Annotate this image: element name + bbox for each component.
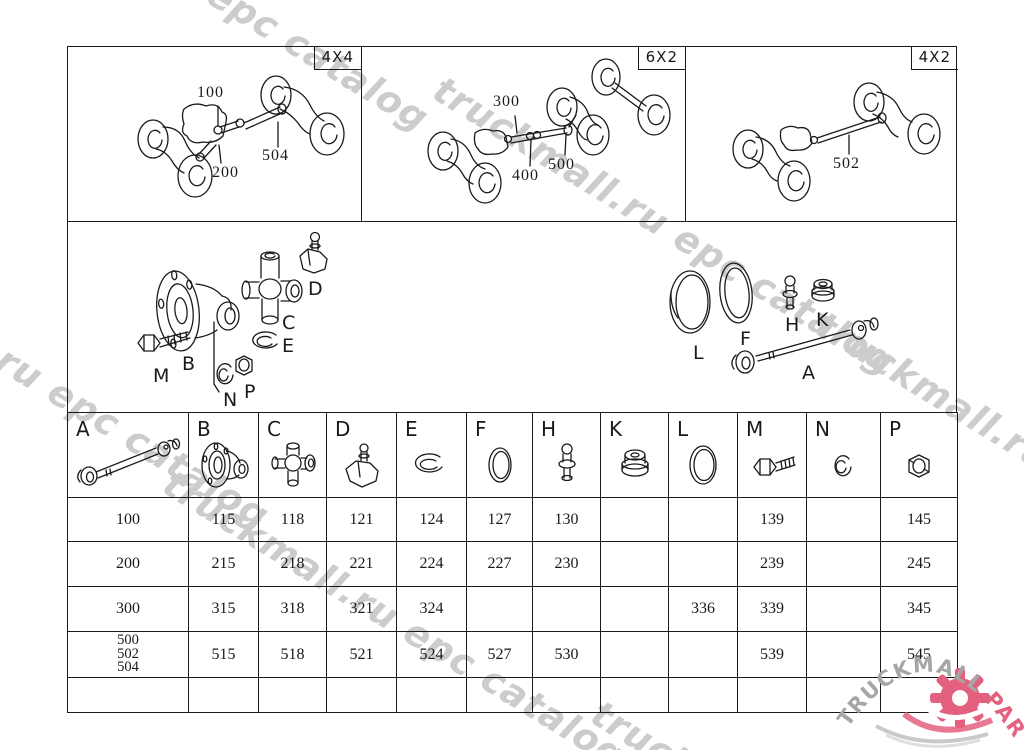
part-label-d: D bbox=[308, 278, 323, 300]
driveshaft bbox=[811, 113, 887, 144]
part-number-cell bbox=[738, 678, 807, 713]
part-number-cell bbox=[259, 678, 327, 713]
yoke-arm-drawing bbox=[195, 284, 239, 338]
callout-500: 500 bbox=[548, 156, 575, 174]
bolt-drawing bbox=[138, 332, 190, 351]
ring-l-drawing bbox=[670, 271, 710, 333]
part-number-cell: 518 bbox=[259, 632, 327, 678]
part-number-cell bbox=[467, 678, 533, 713]
part-number-cell: 215 bbox=[189, 542, 259, 587]
part-number-cell: 245 bbox=[881, 542, 958, 587]
part-number-cell: 318 bbox=[259, 587, 327, 632]
column-header-m: M bbox=[738, 413, 807, 498]
part-label-k: K bbox=[816, 309, 828, 331]
bolt-icon bbox=[744, 439, 800, 491]
part-number-cell bbox=[807, 498, 881, 542]
column-letter: M bbox=[746, 417, 763, 441]
part-number-cell bbox=[669, 542, 738, 587]
front-axle bbox=[428, 132, 501, 203]
part-number-cell bbox=[601, 542, 669, 587]
part-label-a: A bbox=[802, 362, 815, 384]
part-number-cell: 239 bbox=[738, 542, 807, 587]
part-number-cell: 130 bbox=[533, 498, 601, 542]
part-number-cell bbox=[327, 678, 397, 713]
column-letter: D bbox=[335, 417, 350, 441]
part-number-cell bbox=[601, 678, 669, 713]
callout-502: 502 bbox=[833, 155, 860, 173]
part-number-cell: 530 bbox=[533, 632, 601, 678]
lock-washer-icon bbox=[816, 439, 872, 491]
truckmall-logo: TRUCKMALL PARTS bbox=[818, 610, 1024, 750]
part-number-cell: 321 bbox=[327, 587, 397, 632]
part-number-cell: 145 bbox=[881, 498, 958, 542]
leader-line bbox=[214, 322, 219, 392]
drivetrain-panels: 100 200 504 4X4 bbox=[67, 46, 957, 222]
part-number-cell: 339 bbox=[738, 587, 807, 632]
column-letter: K bbox=[609, 417, 622, 441]
panel-4x2: 502 4X2 bbox=[686, 47, 958, 221]
column-letter: B bbox=[197, 417, 211, 441]
part-label-e: E bbox=[282, 335, 294, 357]
grease-nipple-icon bbox=[539, 439, 595, 491]
part-number-cell: 527 bbox=[467, 632, 533, 678]
panel-6x2: 300 400 500 6X2 bbox=[362, 47, 686, 221]
column-header-h: H bbox=[533, 413, 601, 498]
rear-axle bbox=[261, 76, 344, 155]
seal-ring-f-drawing bbox=[717, 261, 755, 324]
part-label-h: H bbox=[785, 314, 799, 336]
drivetrain-illustration-4x2 bbox=[686, 47, 958, 223]
catalog-page: epc catalog truckmall.ru epc catalog tru… bbox=[0, 0, 1024, 750]
column-header-a: A bbox=[68, 413, 189, 498]
snap-ring-drawing bbox=[253, 332, 277, 348]
part-number-cell bbox=[467, 587, 533, 632]
part-label-c: C bbox=[282, 312, 295, 334]
panel-tag-6x2: 6X2 bbox=[638, 47, 685, 70]
propeller-shaft-icon bbox=[76, 429, 180, 487]
part-number-cell: 230 bbox=[533, 542, 601, 587]
part-number-cell: 121 bbox=[327, 498, 397, 542]
seal-ring-icon bbox=[472, 439, 528, 491]
part-label-n: N bbox=[223, 389, 237, 411]
part-number-cell: 227 bbox=[467, 542, 533, 587]
callout-300: 300 bbox=[493, 93, 520, 111]
engine bbox=[780, 126, 812, 150]
part-number-cell: 200 bbox=[68, 542, 189, 587]
column-letter: L bbox=[677, 417, 688, 441]
lock-washer-drawing bbox=[217, 364, 233, 384]
nut-icon bbox=[891, 439, 947, 491]
grease-fitting-drawing bbox=[300, 233, 327, 274]
part-number-cell: 115 bbox=[189, 498, 259, 542]
part-number-cell: 300 bbox=[68, 587, 189, 632]
part-number-cell: 218 bbox=[259, 542, 327, 587]
part-label-f: F bbox=[740, 328, 751, 350]
grease-nipple-drawing bbox=[783, 276, 797, 309]
panel-tag-4x2: 4X2 bbox=[911, 47, 958, 70]
column-header-b: B bbox=[189, 413, 259, 498]
part-number-cell bbox=[807, 542, 881, 587]
part-number-cell bbox=[533, 678, 601, 713]
part-number-cell: 315 bbox=[189, 587, 259, 632]
part-number-cell: 336 bbox=[669, 587, 738, 632]
grease-fitting-icon bbox=[334, 439, 390, 491]
part-number-cell: 124 bbox=[397, 498, 467, 542]
engine bbox=[474, 129, 508, 154]
universal-joint-spider-icon bbox=[265, 439, 321, 491]
snap-ring-icon bbox=[404, 439, 460, 491]
panel-4x4: 100 200 504 4X4 bbox=[68, 47, 362, 221]
part-number-cell bbox=[601, 498, 669, 542]
part-label-l: L bbox=[693, 342, 704, 364]
part-number-cell: 224 bbox=[397, 542, 467, 587]
column-letter: F bbox=[475, 417, 487, 441]
column-header-f: F bbox=[467, 413, 533, 498]
part-number-cell: 139 bbox=[738, 498, 807, 542]
part-number-cell bbox=[601, 587, 669, 632]
part-number-cell: 500 502 504 bbox=[68, 632, 189, 678]
part-number-cell: 127 bbox=[467, 498, 533, 542]
table-row: 200 215 218 221 224 227 230 239 245 bbox=[68, 542, 958, 587]
flange-yoke-drawing bbox=[153, 269, 203, 353]
part-number-cell bbox=[669, 678, 738, 713]
part-number-cell bbox=[189, 678, 259, 713]
part-label-b: B bbox=[182, 353, 195, 375]
part-number-cell bbox=[397, 678, 467, 713]
part-number-cell: 524 bbox=[397, 632, 467, 678]
part-number-cell: 521 bbox=[327, 632, 397, 678]
drivetrain-illustration-6x2 bbox=[362, 47, 686, 223]
part-number-cell: 221 bbox=[327, 542, 397, 587]
part-label-m: M bbox=[153, 365, 169, 387]
column-header-p: P bbox=[881, 413, 958, 498]
part-number-cell bbox=[669, 632, 738, 678]
column-letter: N bbox=[815, 417, 830, 441]
engine bbox=[183, 104, 227, 143]
callout-200: 200 bbox=[212, 164, 239, 182]
callout-504: 504 bbox=[262, 147, 289, 165]
part-number-cell bbox=[68, 678, 189, 713]
column-header-e: E bbox=[397, 413, 467, 498]
ring-icon bbox=[675, 439, 731, 491]
nut-drawing bbox=[236, 356, 252, 375]
exploded-view: M B N P C E D L F H K A bbox=[67, 222, 957, 412]
part-number-cell bbox=[669, 498, 738, 542]
column-header-l: L bbox=[669, 413, 738, 498]
middle-axle bbox=[547, 88, 609, 155]
front-axle bbox=[733, 130, 810, 201]
front-axle bbox=[138, 120, 212, 197]
callout-400: 400 bbox=[512, 167, 539, 185]
drivetrain-illustration-4x4 bbox=[68, 47, 362, 223]
part-number-cell: 539 bbox=[738, 632, 807, 678]
part-number-cell bbox=[533, 587, 601, 632]
part-number-cell: 515 bbox=[189, 632, 259, 678]
panel-tag-4x4: 4X4 bbox=[314, 47, 361, 70]
grommet-drawing bbox=[812, 280, 834, 302]
table-row: 100 115 118 121 124 127 130 139 145 bbox=[68, 498, 958, 542]
column-letter: P bbox=[889, 417, 901, 441]
column-header-d: D bbox=[327, 413, 397, 498]
column-header-n: N bbox=[807, 413, 881, 498]
callout-100: 100 bbox=[197, 84, 224, 102]
part-number-cell: 324 bbox=[397, 587, 467, 632]
column-letter: H bbox=[541, 417, 556, 441]
column-letter: C bbox=[267, 417, 281, 441]
rear-axle bbox=[592, 59, 670, 135]
part-number-cell bbox=[601, 632, 669, 678]
part-number-cell: 100 bbox=[68, 498, 189, 542]
rear-axle bbox=[854, 83, 940, 154]
column-header-k: K bbox=[601, 413, 669, 498]
flange-yoke-icon bbox=[196, 439, 252, 491]
part-number-cell: 118 bbox=[259, 498, 327, 542]
column-header-c: C bbox=[259, 413, 327, 498]
column-letter: E bbox=[405, 417, 418, 441]
part-label-p: P bbox=[244, 381, 255, 403]
grommet-icon bbox=[607, 439, 663, 491]
